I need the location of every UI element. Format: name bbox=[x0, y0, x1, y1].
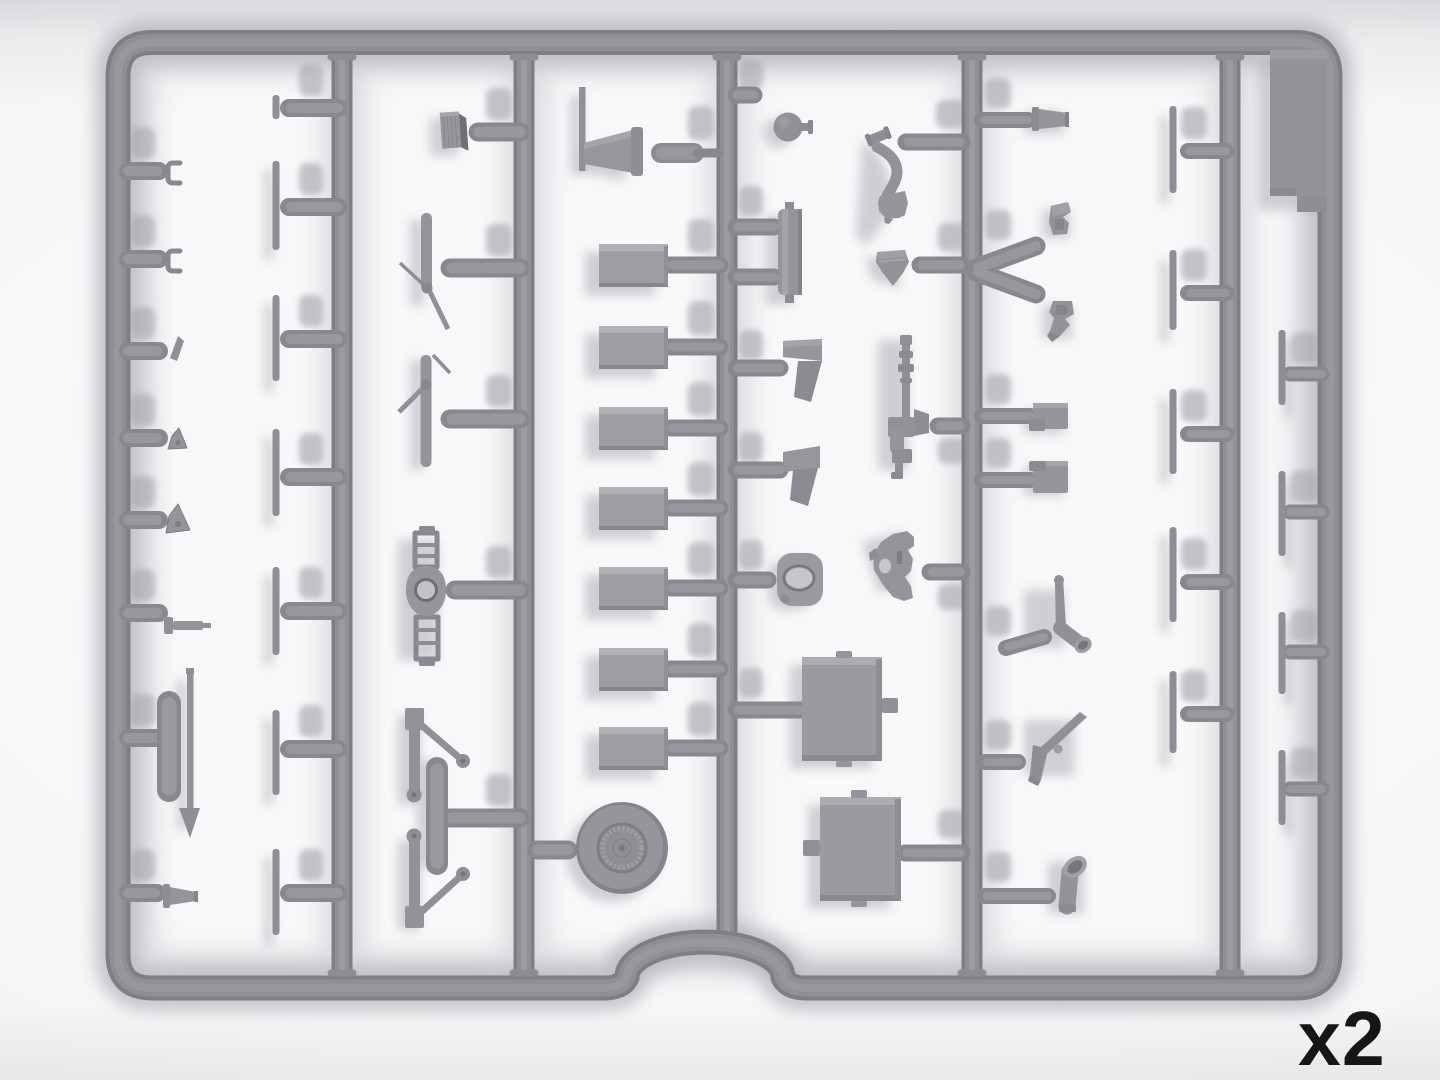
svg-text:x2: x2 bbox=[1298, 996, 1386, 1080]
